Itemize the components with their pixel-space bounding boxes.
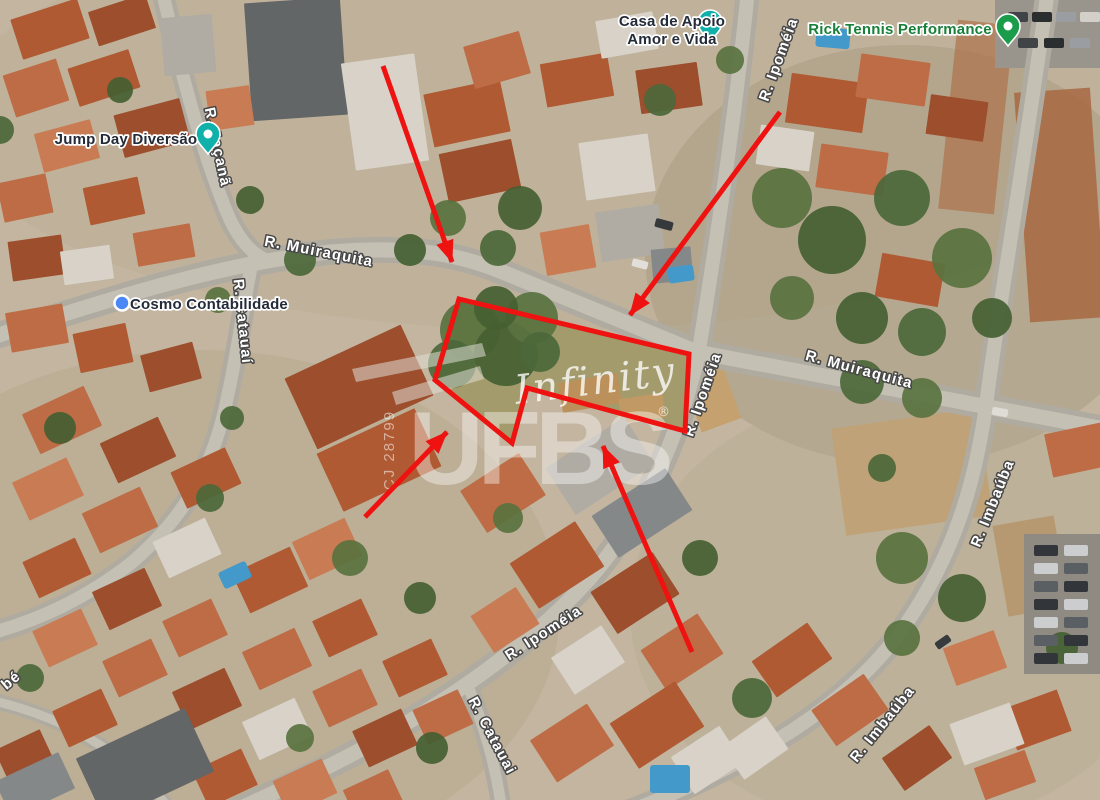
- satellite-map[interactable]: UFBSInfinity®CJ 28799 R. MuiraquitaR. Mu…: [0, 0, 1100, 800]
- map-viewport: UFBSInfinity®CJ 28799 R. MuiraquitaR. Mu…: [0, 0, 1100, 800]
- watermark-license: CJ 28799: [381, 410, 398, 490]
- place-label-text[interactable]: Jump Day Diversão: [55, 131, 198, 148]
- place-label-text[interactable]: Rick Tennis Performance: [808, 21, 992, 38]
- place-label-text[interactable]: Casa de ApoioAmor e Vida: [619, 13, 725, 48]
- place-cosmo-contabilidade[interactable]: Cosmo Contabilidade: [115, 296, 288, 314]
- registered-mark: ®: [657, 405, 670, 420]
- map-dot-icon[interactable]: [115, 296, 130, 311]
- place-label-text[interactable]: Cosmo Contabilidade: [130, 296, 288, 313]
- place-casa-de-apoio-amor-e-vida[interactable]: Casa de ApoioAmor e Vida: [619, 10, 725, 48]
